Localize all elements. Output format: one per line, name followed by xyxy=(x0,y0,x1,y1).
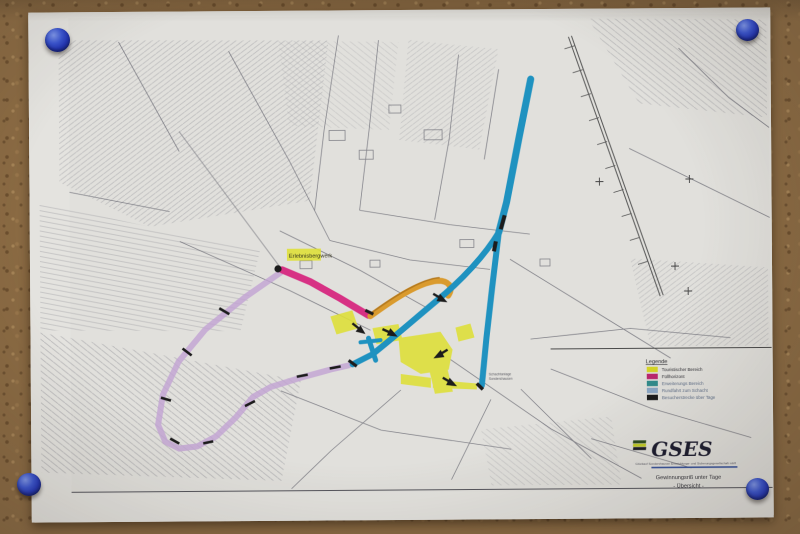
legend-chip-4 xyxy=(647,395,658,400)
legend-label-3: Rundfahrt zum Schacht xyxy=(662,388,709,393)
gses-logo-text: GSES xyxy=(651,437,712,461)
pushpin-bottom-left xyxy=(17,473,41,496)
highlighted-map-label: Erlebnisbergwerk xyxy=(289,253,332,259)
legend-label-0: Touristischer Bereich xyxy=(662,367,703,372)
legend-label-4: Besucherstrecke über Tage xyxy=(662,395,716,400)
map-sheet: Erlebnisbergwerk Schachtanlage Sondersha… xyxy=(28,7,774,522)
route-start-dot xyxy=(274,265,281,272)
legend-chip-2 xyxy=(647,381,658,386)
pushpin-top-left xyxy=(45,28,70,52)
legend-chip-1 xyxy=(647,374,658,379)
company-name-line: Glückauf Sondershausen Entwicklungs- und… xyxy=(635,461,736,466)
legend-chip-3 xyxy=(647,388,658,393)
legend-label-1: Füllhorizont xyxy=(662,374,686,379)
legend-chip-0 xyxy=(647,367,658,372)
photo-of-mine-map-on-corkboard: Erlebnisbergwerk Schachtanlage Sondersha… xyxy=(0,0,800,534)
gses-logo-icon xyxy=(633,440,647,450)
pushpin-bottom-right xyxy=(746,478,769,500)
pushpin-top-right xyxy=(736,19,759,41)
map-caption-line2: - Übersicht - xyxy=(673,482,704,489)
legend-label-2: Erweiterungs Bereich xyxy=(662,381,704,386)
map-caption-line1: Gewinnungsriß unter Tage xyxy=(656,475,722,481)
mine-map-drawing: Erlebnisbergwerk Schachtanlage Sondersha… xyxy=(28,7,774,522)
shaft-label-line2: Sondershausen xyxy=(489,377,513,381)
legend-title: Legende xyxy=(646,359,668,365)
